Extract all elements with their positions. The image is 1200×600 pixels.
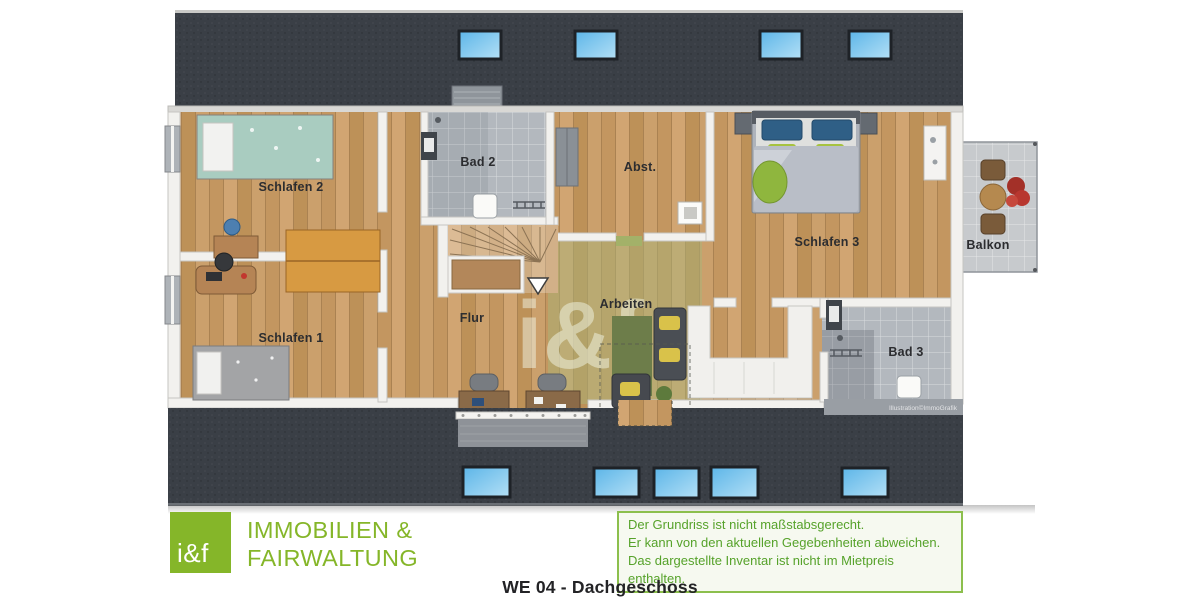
- wall-abst-bottom-b: [644, 233, 714, 241]
- staircase: [448, 225, 558, 294]
- wall-abst-right: [706, 112, 714, 241]
- wall-main-v3: [378, 348, 387, 402]
- room-label-arbeiten: Arbeiten: [600, 297, 653, 311]
- chair-icon: [215, 253, 233, 271]
- room-label-schlafen2: Schlafen 2: [258, 180, 323, 194]
- throw-blanket: [753, 161, 787, 203]
- toilet-icon: [473, 194, 497, 218]
- room-label-schlafen3: Schlafen 3: [794, 235, 859, 249]
- door-mat: [616, 236, 642, 246]
- bad3-shower-zone: [822, 330, 874, 402]
- disclaimer-line1: Der Grundriss ist nicht maßstabsgerecht.: [628, 516, 952, 534]
- plant-icon: [656, 386, 672, 402]
- balcony-chair-icon: [981, 214, 1005, 234]
- room-label-balkon: Balkon: [966, 238, 1009, 252]
- wall-abst-bottom-a: [554, 233, 616, 241]
- logo-text: i&f: [177, 538, 209, 569]
- wall-bad2-left: [421, 112, 428, 217]
- outer-wall-right: [951, 112, 963, 404]
- vanity-icon: [924, 126, 946, 180]
- room-label-bad3: Bad 3: [888, 345, 923, 359]
- disclaimer-line2: Er kann von den aktuellen Gegebenheiten …: [628, 534, 952, 552]
- wall-main-v1: [378, 112, 387, 212]
- page-title: WE 04 - Dachgeschoss: [380, 577, 820, 598]
- dormer-centre: [456, 412, 590, 447]
- room-label-bad2: Bad 2: [460, 155, 495, 169]
- roof-top: [175, 10, 963, 112]
- company-name-line1: IMMOBILIEN &: [247, 517, 418, 545]
- company-name-line2: FAIRWALTUNG: [247, 545, 418, 573]
- page: Balkon i&f: [0, 0, 1200, 600]
- chair-icon: [538, 374, 566, 391]
- wall-bad2-right: [546, 112, 554, 225]
- balcony-chair-icon: [981, 160, 1005, 180]
- toilet-icon: [897, 376, 921, 398]
- room-balkon: Balkon: [955, 142, 1037, 272]
- nightstand-icon: [860, 113, 877, 134]
- balcony-table-icon: [980, 184, 1006, 210]
- dormer-arbeiten: [618, 400, 672, 426]
- wall-stair-left: [438, 225, 448, 297]
- shower-head-icon: [837, 335, 843, 341]
- pillow-icon: [762, 120, 802, 140]
- wall-bad3-left-b: [820, 352, 828, 402]
- company-logo: i&f: [170, 512, 231, 573]
- chair-icon: [470, 374, 498, 391]
- wall-s3-bottom-a: [714, 298, 736, 307]
- roof-top-surface: [175, 12, 963, 108]
- stair-rail-wood: [452, 260, 520, 289]
- chair-icon: [224, 219, 240, 235]
- roof-bottom: Illustration©ImmoGrafik: [168, 399, 963, 506]
- roof-ridge-highlight: [175, 10, 963, 13]
- shower-head-icon: [435, 117, 441, 123]
- illustration-credit: Illustration©ImmoGrafik: [889, 404, 958, 412]
- room-label-flur: Flur: [460, 311, 485, 325]
- room-label-schlafen1: Schlafen 1: [258, 331, 323, 345]
- pillow-icon: [659, 348, 680, 362]
- pillow-icon: [812, 120, 852, 140]
- nightstand-icon: [735, 113, 752, 134]
- company-name: IMMOBILIEN & FAIRWALTUNG: [247, 517, 418, 572]
- pillow-icon: [659, 316, 680, 330]
- room-label-abst: Abst.: [624, 160, 657, 174]
- pillow-icon: [620, 382, 640, 396]
